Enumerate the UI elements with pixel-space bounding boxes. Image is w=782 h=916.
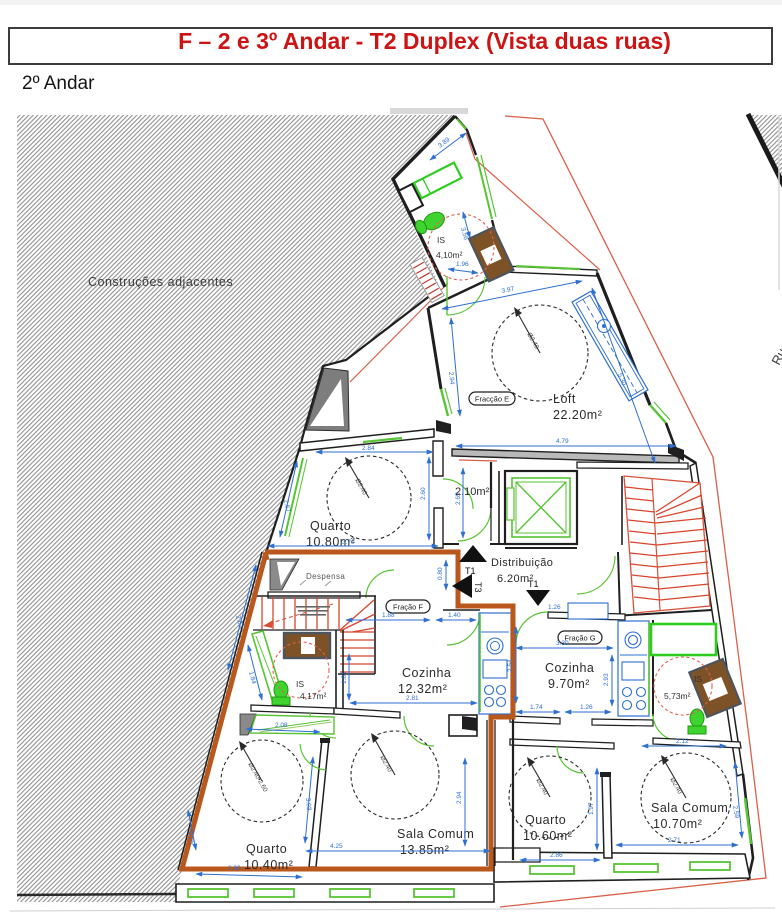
svg-text:2.81: 2.81 (406, 695, 419, 702)
svg-text:5,73m²: 5,73m² (664, 691, 691, 701)
svg-text:Sala Comum: Sala Comum (397, 827, 474, 841)
svg-text:IS: IS (296, 679, 304, 689)
svg-text:12.32m²: 12.32m² (398, 682, 447, 696)
svg-text:1.26: 1.26 (548, 604, 561, 611)
svg-text:4,10m²: 4,10m² (436, 250, 463, 260)
svg-text:Fracção E: Fracção E (475, 395, 509, 404)
svg-text:Sala Comum: Sala Comum (651, 801, 728, 815)
svg-text:Cozinha: Cozinha (402, 666, 451, 680)
svg-text:IS: IS (437, 235, 445, 245)
svg-text:Fração G: Fração G (564, 634, 595, 643)
svg-text:3.30: 3.30 (556, 640, 569, 647)
svg-text:1.40: 1.40 (448, 612, 461, 619)
svg-text:Loft: Loft (553, 392, 576, 406)
svg-text:2.94: 2.94 (456, 791, 463, 804)
svg-text:Despensa: Despensa (306, 572, 345, 581)
svg-text:1.96: 1.96 (456, 261, 469, 268)
svg-text:2.80: 2.80 (228, 865, 241, 872)
svg-text:2.65: 2.65 (455, 492, 462, 505)
svg-text:2.93: 2.93 (603, 673, 610, 686)
svg-text:Cozinha: Cozinha (545, 661, 594, 675)
svg-text:3.70: 3.70 (342, 539, 355, 546)
svg-text:10.40m²: 10.40m² (244, 858, 293, 872)
svg-text:1.81: 1.81 (341, 671, 348, 684)
svg-text:10.70m²: 10.70m² (653, 817, 702, 831)
svg-text:2.94: 2.94 (447, 371, 455, 385)
svg-text:4.79: 4.79 (556, 438, 569, 445)
svg-text:2.60: 2.60 (420, 487, 427, 500)
svg-text:IS: IS (694, 674, 702, 684)
svg-text:Quarto: Quarto (525, 813, 566, 827)
svg-text:2.71: 2.71 (668, 837, 681, 844)
svg-text:1.88: 1.88 (382, 612, 395, 619)
svg-text:0.80: 0.80 (437, 567, 444, 580)
svg-text:T3: T3 (473, 582, 483, 593)
svg-text:1.74: 1.74 (530, 704, 543, 711)
svg-text:13.85m²: 13.85m² (400, 843, 449, 857)
svg-text:3.03: 3.03 (304, 798, 312, 812)
svg-text:T1: T1 (465, 566, 476, 576)
svg-text:22.20m²: 22.20m² (553, 408, 602, 422)
svg-text:1.26: 1.26 (580, 704, 593, 711)
svg-text:10.60m²: 10.60m² (523, 829, 572, 843)
svg-text:4,17m²: 4,17m² (300, 691, 327, 701)
svg-text:Quarto: Quarto (310, 519, 351, 533)
svg-text:Fração F: Fração F (393, 603, 423, 612)
svg-text:2.12: 2.12 (676, 738, 689, 745)
svg-text:1.97: 1.97 (588, 802, 595, 815)
svg-text:2.08: 2.08 (275, 722, 288, 729)
svg-text:9.70m²: 9.70m² (548, 677, 590, 691)
svg-text:2.86: 2.86 (550, 852, 563, 859)
svg-text:2.84: 2.84 (362, 445, 375, 452)
svg-text:4.25: 4.25 (330, 843, 343, 850)
svg-text:2.54: 2.54 (507, 659, 514, 672)
svg-text:Distribuição: Distribuição (491, 557, 553, 569)
svg-text:Quarto: Quarto (246, 842, 287, 856)
svg-text:Construções adjacentes: Construções adjacentes (88, 275, 233, 289)
svg-text:Rua: Rua (768, 339, 782, 368)
svg-text:T1: T1 (528, 579, 539, 589)
